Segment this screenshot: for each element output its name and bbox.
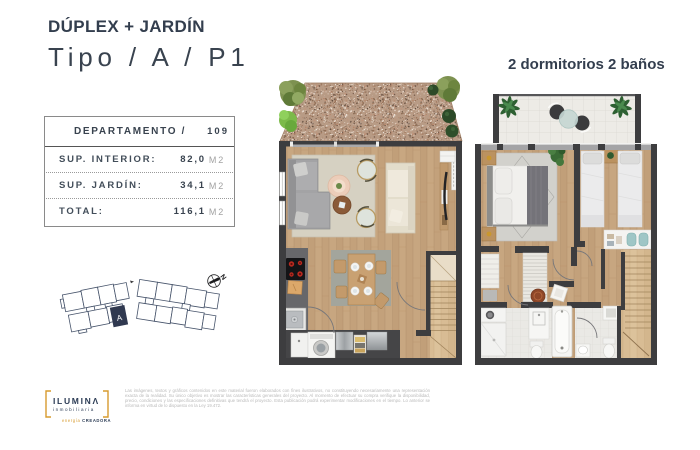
svg-text:inmobiliaria: inmobiliaria [53, 407, 95, 412]
svg-text:energía CREADORA: energía CREADORA [62, 418, 111, 423]
svg-text:N: N [218, 273, 227, 281]
svg-text:ILUMINΛ: ILUMINΛ [53, 396, 100, 406]
